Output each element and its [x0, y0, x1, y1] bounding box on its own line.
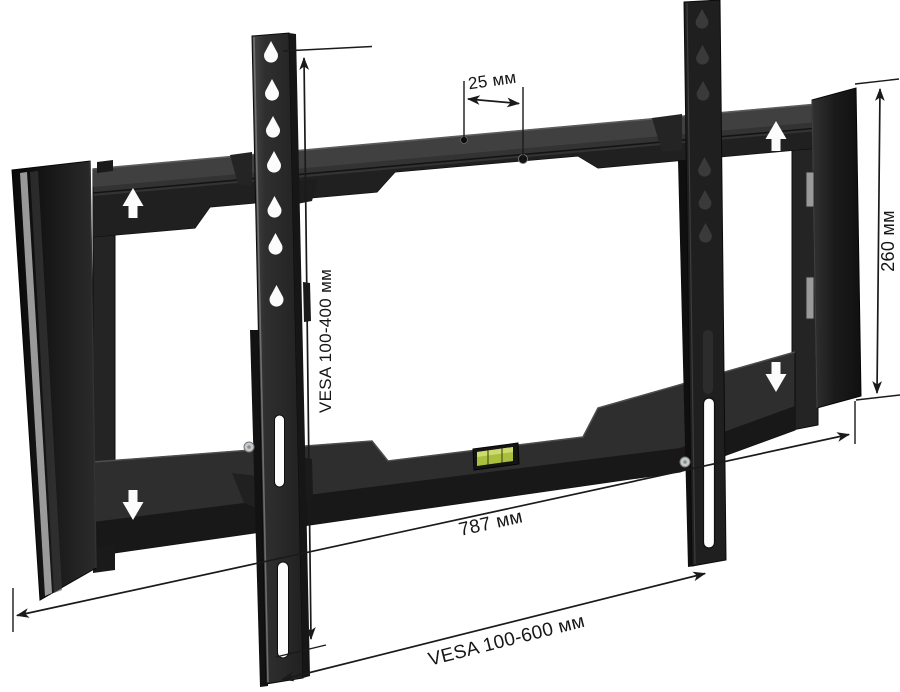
wall-mount-diagram: 25 мм VESA 100-400 мм 260 мм 787 мм VESA…: [0, 0, 900, 692]
right-bracket-screw-center: [683, 460, 687, 464]
right-bracket-slot-bottom: [704, 398, 715, 548]
right-cap-body: [812, 88, 861, 408]
dim-v400-tick-top: [283, 47, 372, 52]
dim-v600-label: VESA 100-600 мм: [426, 611, 587, 671]
dim-260-tick-top: [855, 79, 899, 84]
dim-260-tick-bottom: [856, 395, 900, 400]
product-diagram-canvas: 25 мм VESA 100-400 мм 260 мм 787 мм VESA…: [0, 0, 900, 692]
dimension-vesa-horizontal: VESA 100-600 мм: [282, 574, 705, 680]
dim-v400-label: VESA 100-400 мм: [316, 269, 335, 413]
dim-25-label: 25 мм: [467, 68, 518, 94]
right-cap-clip-bottom: [806, 277, 814, 319]
left-cap: [12, 161, 96, 600]
plate-hole-left: [461, 137, 468, 144]
left-bracket-screw-center: [247, 445, 251, 449]
right-tv-bracket: [678, 0, 726, 567]
left-tv-bracket: [244, 33, 313, 687]
left-bracket-slot-bottom: [278, 562, 289, 658]
dim-260-label: 260 мм: [878, 210, 898, 272]
dim-787-label: 787 мм: [457, 506, 525, 541]
dim-v600-arrow: [282, 574, 705, 680]
right-bracket-slot-upper: [703, 330, 713, 394]
right-cap-clip-top: [806, 172, 814, 207]
left-bracket-slot-mid: [275, 415, 285, 487]
dim-25-arrow: [468, 99, 519, 104]
dimension-260mm: 260 мм: [855, 79, 900, 400]
top-left-tab: [97, 160, 113, 173]
